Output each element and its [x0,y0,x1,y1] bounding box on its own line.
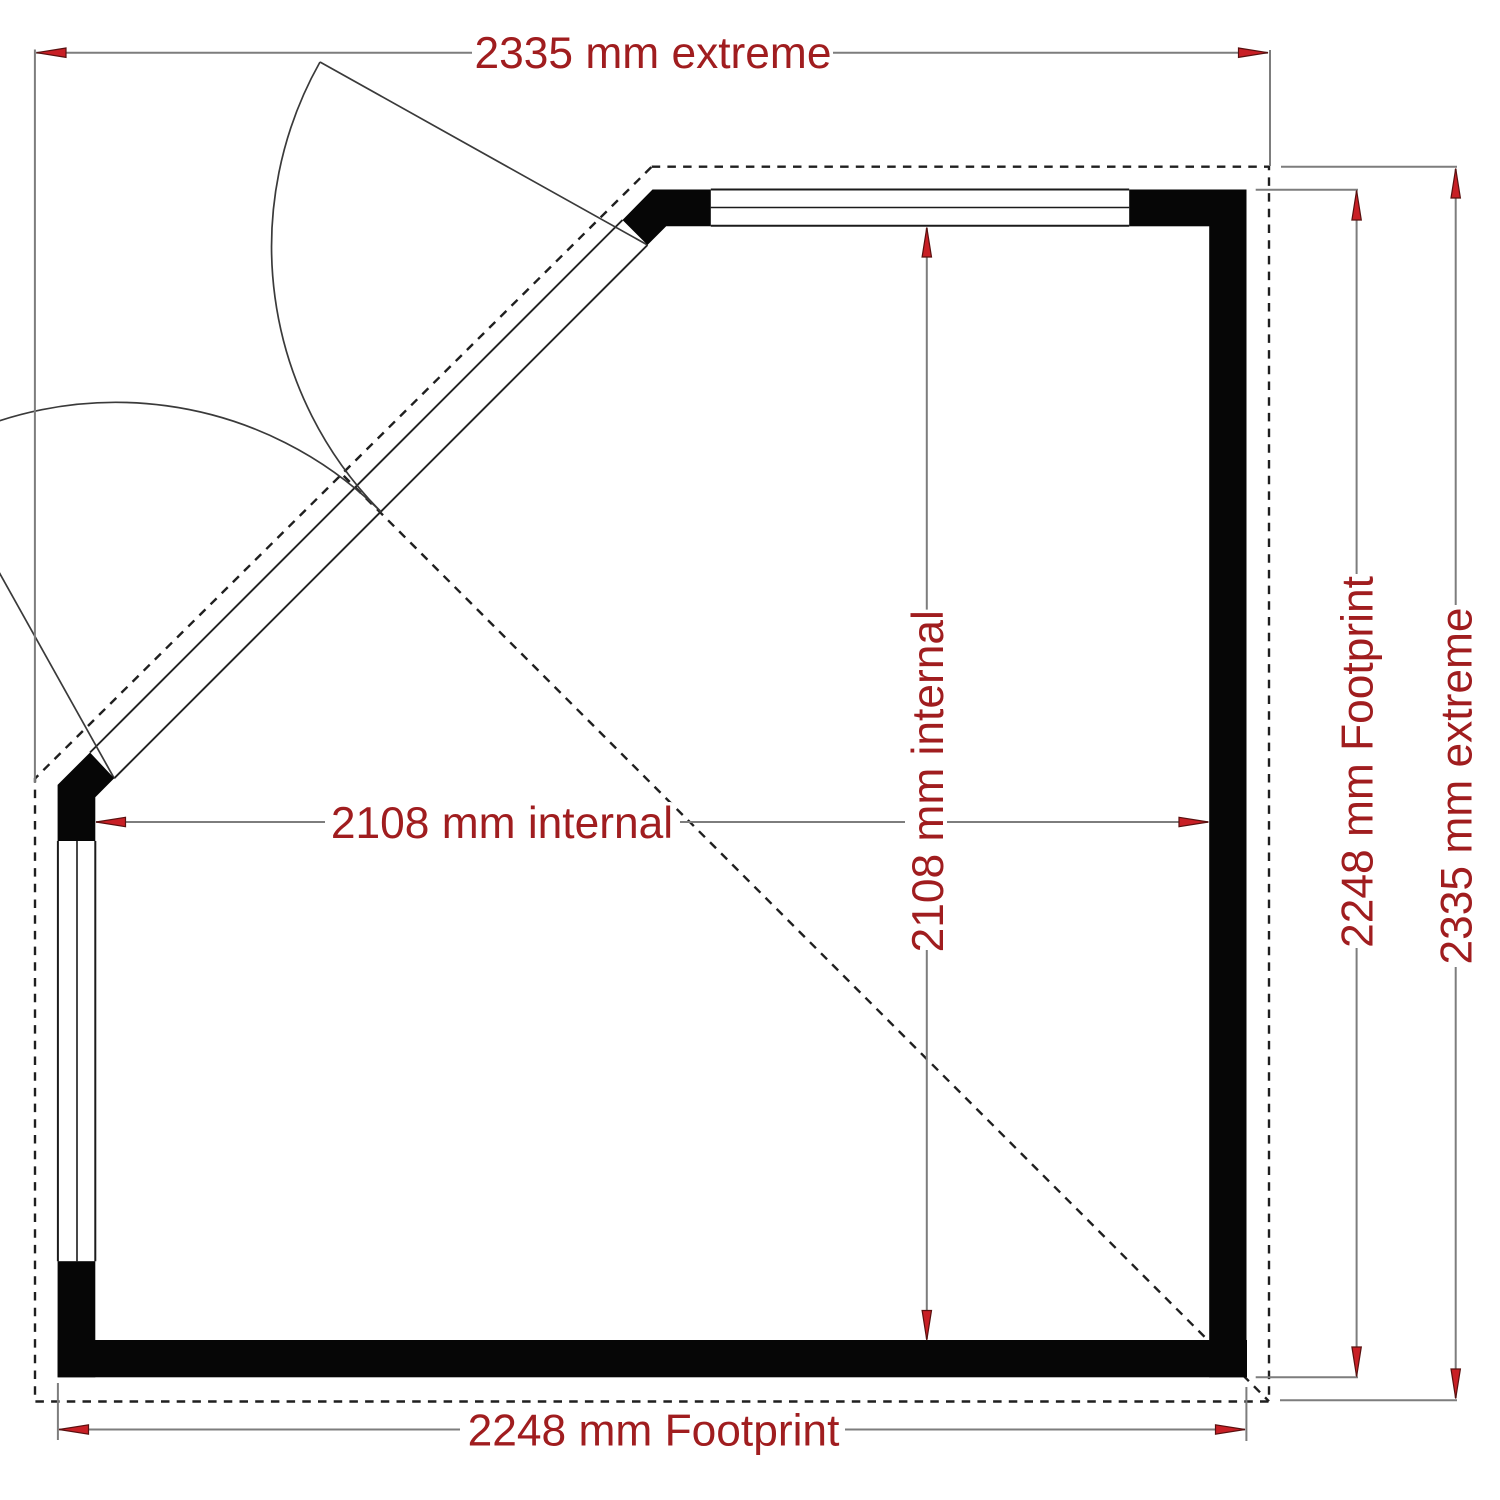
svg-text:2335 mm extreme: 2335 mm extreme [475,29,832,78]
svg-text:2335 mm extreme: 2335 mm extreme [1433,608,1482,965]
svg-text:2248 mm Footprint: 2248 mm Footprint [1334,576,1383,948]
svg-text:2108 mm internal: 2108 mm internal [331,799,673,848]
svg-text:2248 mm Footprint: 2248 mm Footprint [468,1407,840,1456]
svg-text:2108 mm internal: 2108 mm internal [904,610,953,952]
